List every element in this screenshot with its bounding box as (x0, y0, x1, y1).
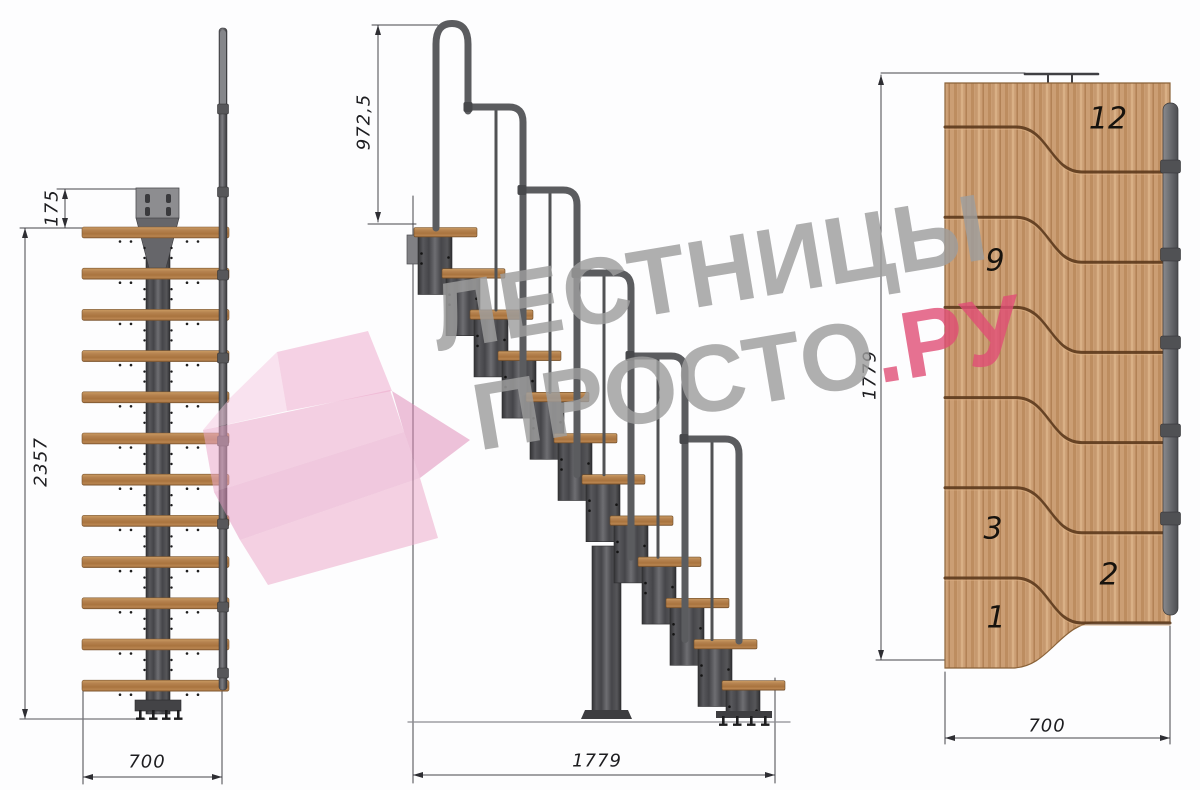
front-step (82, 392, 229, 403)
side-support-base (581, 710, 632, 719)
side-tread (554, 434, 617, 444)
dim-label-top-width: 700 (1028, 716, 1065, 737)
dim-label-front-height: 2357 (31, 437, 52, 487)
staircase-drawing-page: 175 2357 700 972,5 1779 1779 700 12 9 3 … (0, 0, 1200, 790)
front-step (82, 433, 229, 444)
top-handrail-strip (1163, 103, 1178, 615)
front-step (82, 680, 229, 691)
front-step (82, 474, 229, 485)
front-wall-plate (136, 188, 179, 218)
front-base-anchors (135, 700, 183, 720)
side-base-anchors (716, 711, 772, 726)
front-step (82, 598, 229, 609)
side-handrail-top-loop (436, 24, 468, 229)
front-column-flare (136, 218, 179, 268)
step-number-12: 12 (1089, 102, 1127, 137)
front-step (82, 227, 229, 238)
side-tread (610, 516, 673, 526)
front-step (82, 515, 229, 526)
step-number-3: 3 (983, 512, 1002, 547)
front-post-top-cap (220, 30, 226, 106)
dim-label-plate-offset: 175 (42, 189, 63, 226)
step-number-2: 2 (1099, 558, 1118, 593)
side-tread (722, 681, 785, 691)
side-view-drawing (368, 24, 790, 784)
side-tread (498, 351, 561, 361)
front-step (82, 639, 229, 650)
dim-label-side-length: 1779 (572, 751, 622, 772)
step-number-9: 9 (985, 244, 1004, 279)
side-tread (414, 228, 477, 238)
technical-drawing (0, 0, 1200, 790)
side-tread (694, 640, 757, 650)
front-step (82, 309, 229, 320)
side-tread (582, 475, 645, 485)
step-number-1: 1 (986, 601, 1005, 636)
front-step (82, 268, 229, 279)
dim-label-top-length: 1779 (860, 350, 881, 400)
dim-label-rail-height: 972,5 (354, 94, 375, 151)
side-tread (666, 598, 729, 608)
top-view-drawing (876, 73, 1181, 744)
front-view-drawing (20, 28, 229, 784)
front-step (82, 351, 229, 362)
dim-label-front-width: 700 (128, 752, 165, 773)
side-tread (638, 557, 701, 567)
front-step (82, 557, 229, 568)
